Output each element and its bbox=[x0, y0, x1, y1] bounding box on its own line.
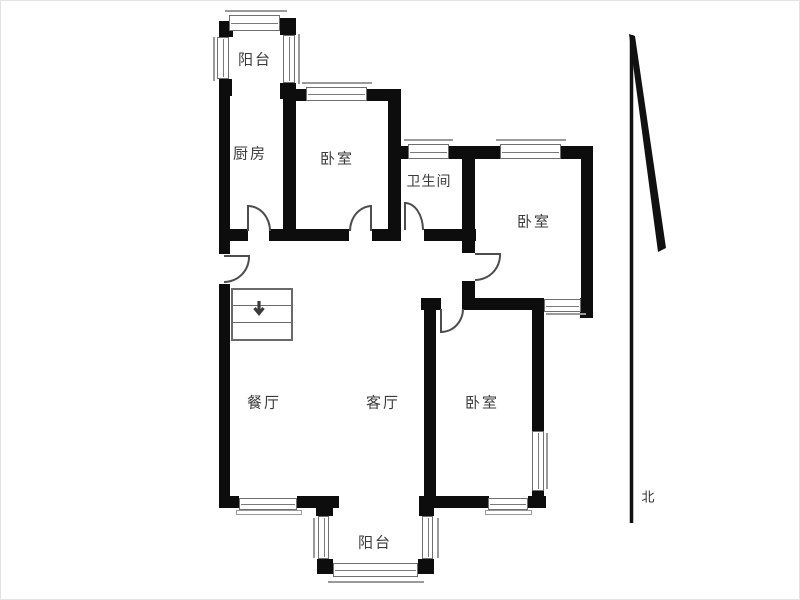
bedroom-bottom-door-arc bbox=[441, 309, 464, 333]
window bbox=[488, 498, 528, 510]
bedroom-bottom-door-leaf bbox=[440, 309, 442, 333]
window bbox=[283, 35, 295, 83]
wall bbox=[418, 559, 434, 574]
bathroom-door-arc bbox=[405, 202, 424, 230]
window bbox=[217, 37, 229, 79]
wall bbox=[419, 496, 434, 516]
room-label-bathroom: 卫生间 bbox=[407, 171, 452, 191]
room-label-bedroom-bottom: 卧室 bbox=[465, 392, 499, 413]
wall bbox=[581, 158, 593, 318]
wall bbox=[316, 496, 333, 516]
bedroom-top-door-leaf bbox=[370, 205, 372, 231]
window bbox=[333, 563, 418, 577]
room-label-bedroom-top: 卧室 bbox=[320, 148, 354, 169]
wall bbox=[372, 229, 400, 241]
stairs-direction-arrow-icon bbox=[251, 299, 267, 319]
window bbox=[408, 144, 449, 159]
room-label-dining-room: 餐厅 bbox=[247, 392, 281, 413]
wall bbox=[532, 491, 544, 508]
wall bbox=[317, 559, 333, 574]
wall bbox=[219, 229, 248, 241]
window-sill bbox=[496, 139, 566, 141]
bedroom-right-door-leaf bbox=[475, 253, 501, 255]
floor-plan: 阳台 厨房 卧室 卫生间 卧室 餐厅 客厅 卧室 阳台 北 bbox=[0, 0, 800, 600]
window-sill bbox=[404, 139, 453, 141]
wall bbox=[532, 309, 544, 431]
window-sill bbox=[236, 510, 302, 515]
window bbox=[229, 15, 280, 31]
window-sill bbox=[313, 518, 315, 558]
bathroom-door-leaf bbox=[404, 202, 406, 230]
bedroom-right-door-arc bbox=[475, 255, 501, 281]
wall bbox=[424, 299, 436, 508]
wall bbox=[580, 298, 593, 318]
window bbox=[318, 516, 329, 559]
window-sill bbox=[485, 510, 532, 515]
wall bbox=[219, 496, 239, 508]
window-sill bbox=[546, 433, 548, 489]
room-label-balcony-bottom: 阳台 bbox=[358, 532, 392, 553]
window bbox=[544, 299, 581, 312]
wall bbox=[388, 101, 401, 241]
bedroom-top-door-arc bbox=[349, 205, 372, 231]
window-sill bbox=[213, 37, 215, 81]
window-sill bbox=[225, 10, 287, 12]
window-sill bbox=[302, 82, 372, 84]
entry-door-arc bbox=[224, 257, 250, 283]
wall bbox=[219, 284, 230, 508]
window-sill bbox=[298, 34, 300, 84]
window bbox=[500, 144, 561, 159]
window bbox=[422, 516, 433, 559]
window bbox=[239, 498, 297, 510]
room-label-bedroom-right: 卧室 bbox=[517, 211, 551, 232]
room-label-living-room: 客厅 bbox=[366, 392, 400, 413]
room-label-kitchen: 厨房 bbox=[233, 143, 267, 164]
window-sill bbox=[328, 581, 424, 583]
window-sill bbox=[546, 313, 586, 315]
window bbox=[532, 431, 544, 491]
entry-door-leaf bbox=[224, 255, 250, 257]
wall bbox=[283, 84, 296, 241]
kitchen-door-arc bbox=[248, 205, 271, 231]
stairs-step-line bbox=[233, 322, 291, 323]
wall bbox=[367, 89, 401, 101]
kitchen-door-leaf bbox=[247, 205, 249, 231]
window-sill bbox=[437, 518, 439, 558]
north-arrow-icon bbox=[616, 26, 676, 536]
wall bbox=[424, 229, 476, 241]
north-label: 北 bbox=[641, 487, 654, 506]
window bbox=[306, 87, 367, 101]
wall bbox=[269, 229, 349, 241]
wall bbox=[475, 146, 501, 159]
wall bbox=[280, 18, 296, 35]
room-label-balcony-top: 阳台 bbox=[238, 49, 272, 70]
